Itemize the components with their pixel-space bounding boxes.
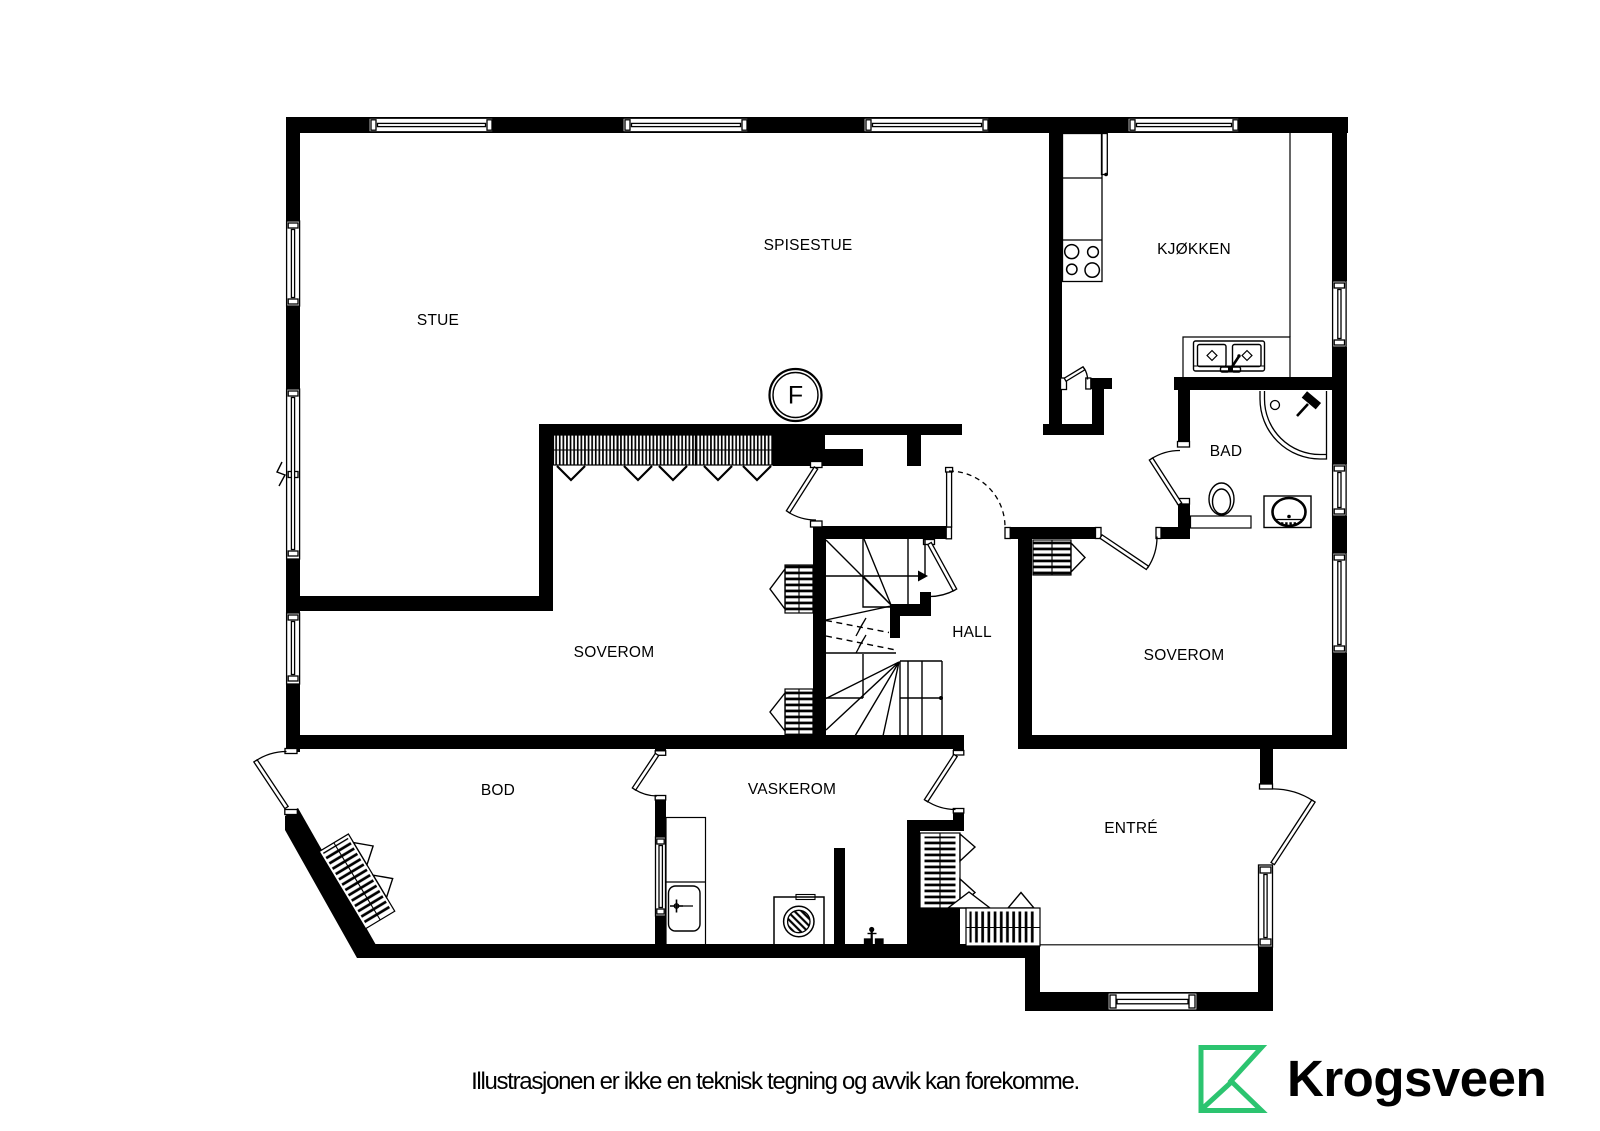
svg-text:HALL: HALL — [952, 624, 992, 641]
svg-text:ENTRÉ: ENTRÉ — [1104, 820, 1158, 837]
svg-text:SPISESTUE: SPISESTUE — [764, 237, 853, 254]
svg-text:F: F — [788, 382, 803, 410]
svg-text:SOVEROM: SOVEROM — [1144, 647, 1225, 664]
svg-text:Illustrasjonen er ikke en tekn: Illustrasjonen er ikke en teknisk tegnin… — [471, 1068, 1079, 1095]
svg-text:STUE: STUE — [417, 312, 459, 329]
svg-text:VASKEROM: VASKEROM — [748, 781, 836, 798]
svg-text:KJØKKEN: KJØKKEN — [1157, 241, 1231, 258]
svg-text:BAD: BAD — [1210, 443, 1242, 460]
svg-text:SOVEROM: SOVEROM — [574, 644, 655, 661]
svg-text:Krogsveen: Krogsveen — [1287, 1050, 1546, 1107]
svg-text:BOD: BOD — [481, 782, 515, 799]
